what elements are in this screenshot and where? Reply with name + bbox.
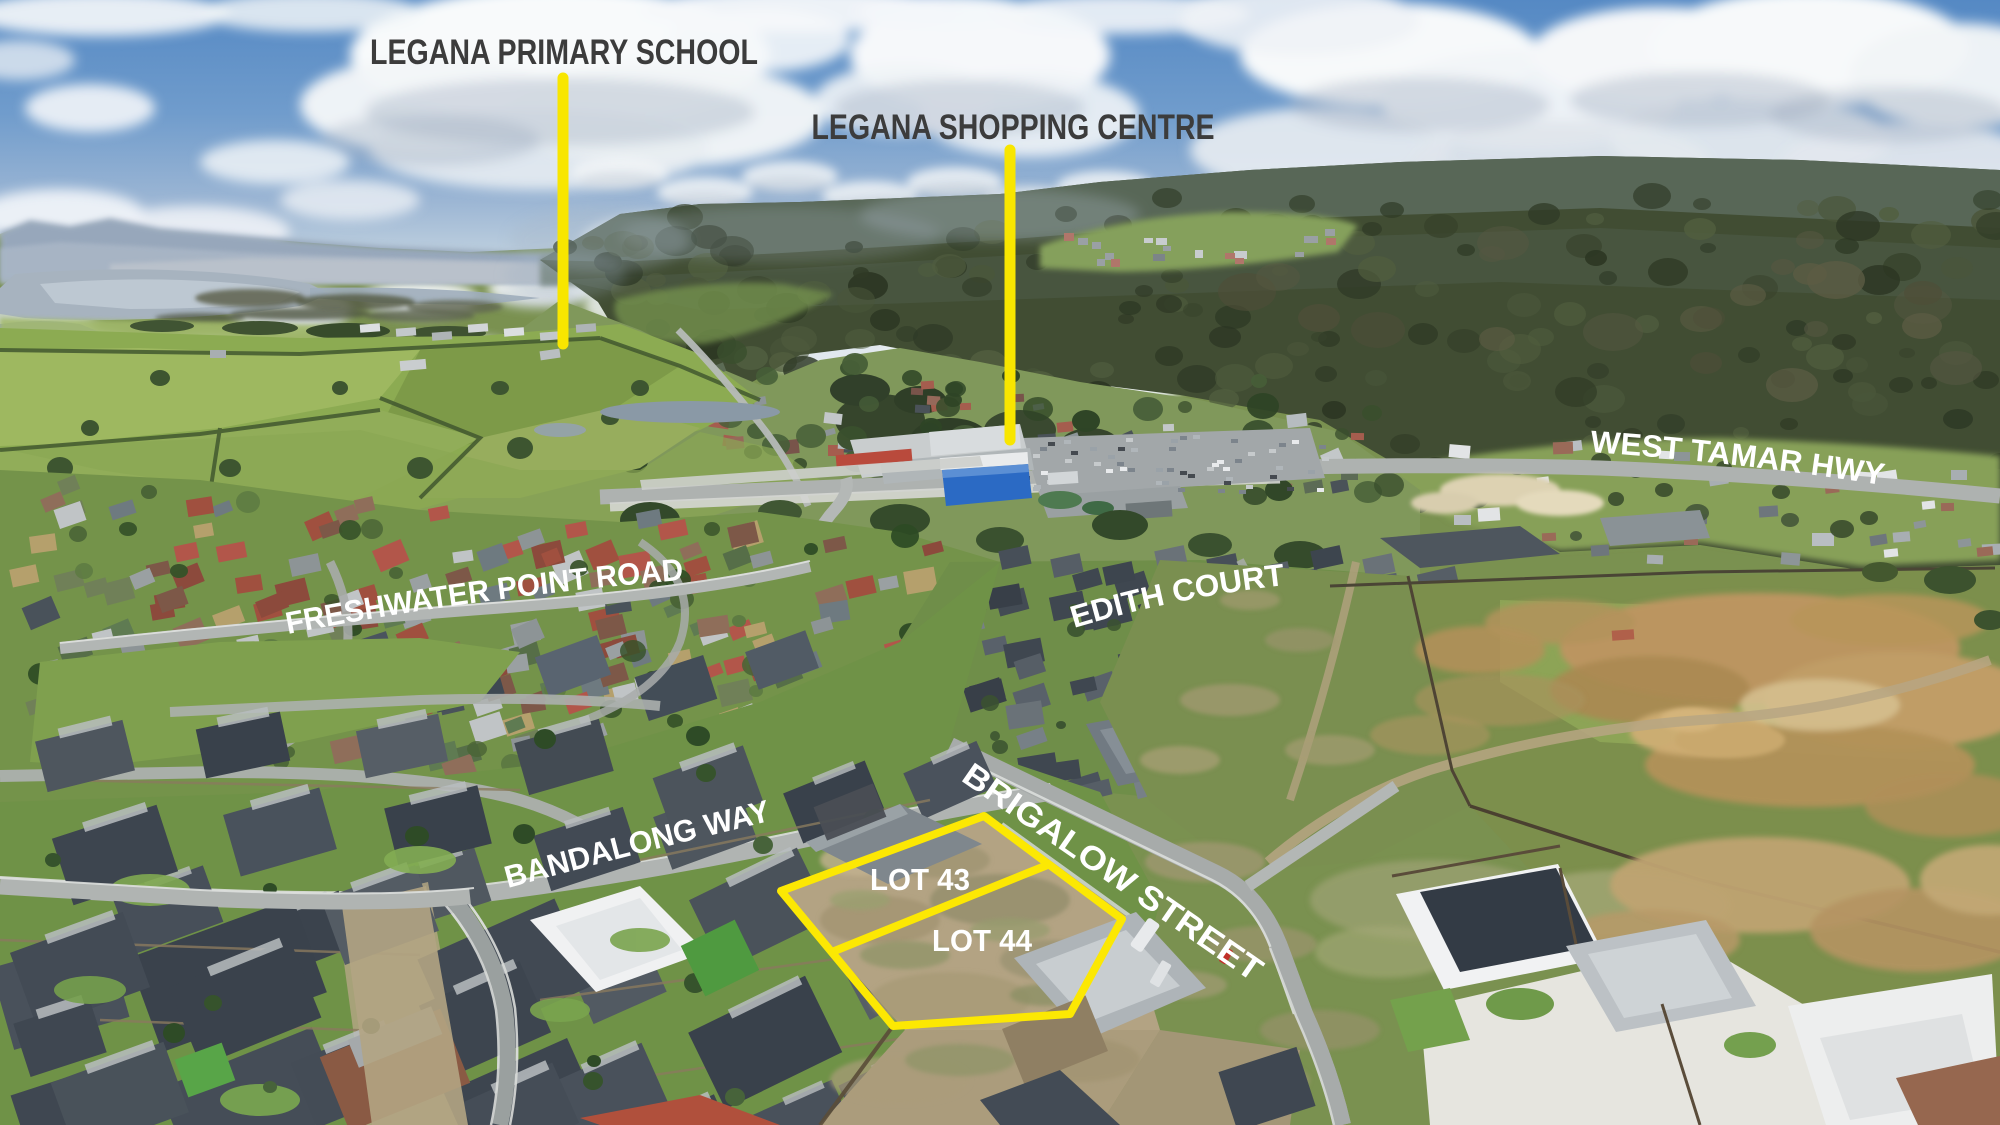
svg-text:LEGANA PRIMARY SCHOOL: LEGANA PRIMARY SCHOOL bbox=[370, 33, 758, 72]
svg-text:LOT 44: LOT 44 bbox=[932, 923, 1033, 958]
svg-text:LOT 43: LOT 43 bbox=[870, 862, 970, 897]
svg-text:LEGANA SHOPPING CENTRE: LEGANA SHOPPING CENTRE bbox=[812, 108, 1215, 147]
